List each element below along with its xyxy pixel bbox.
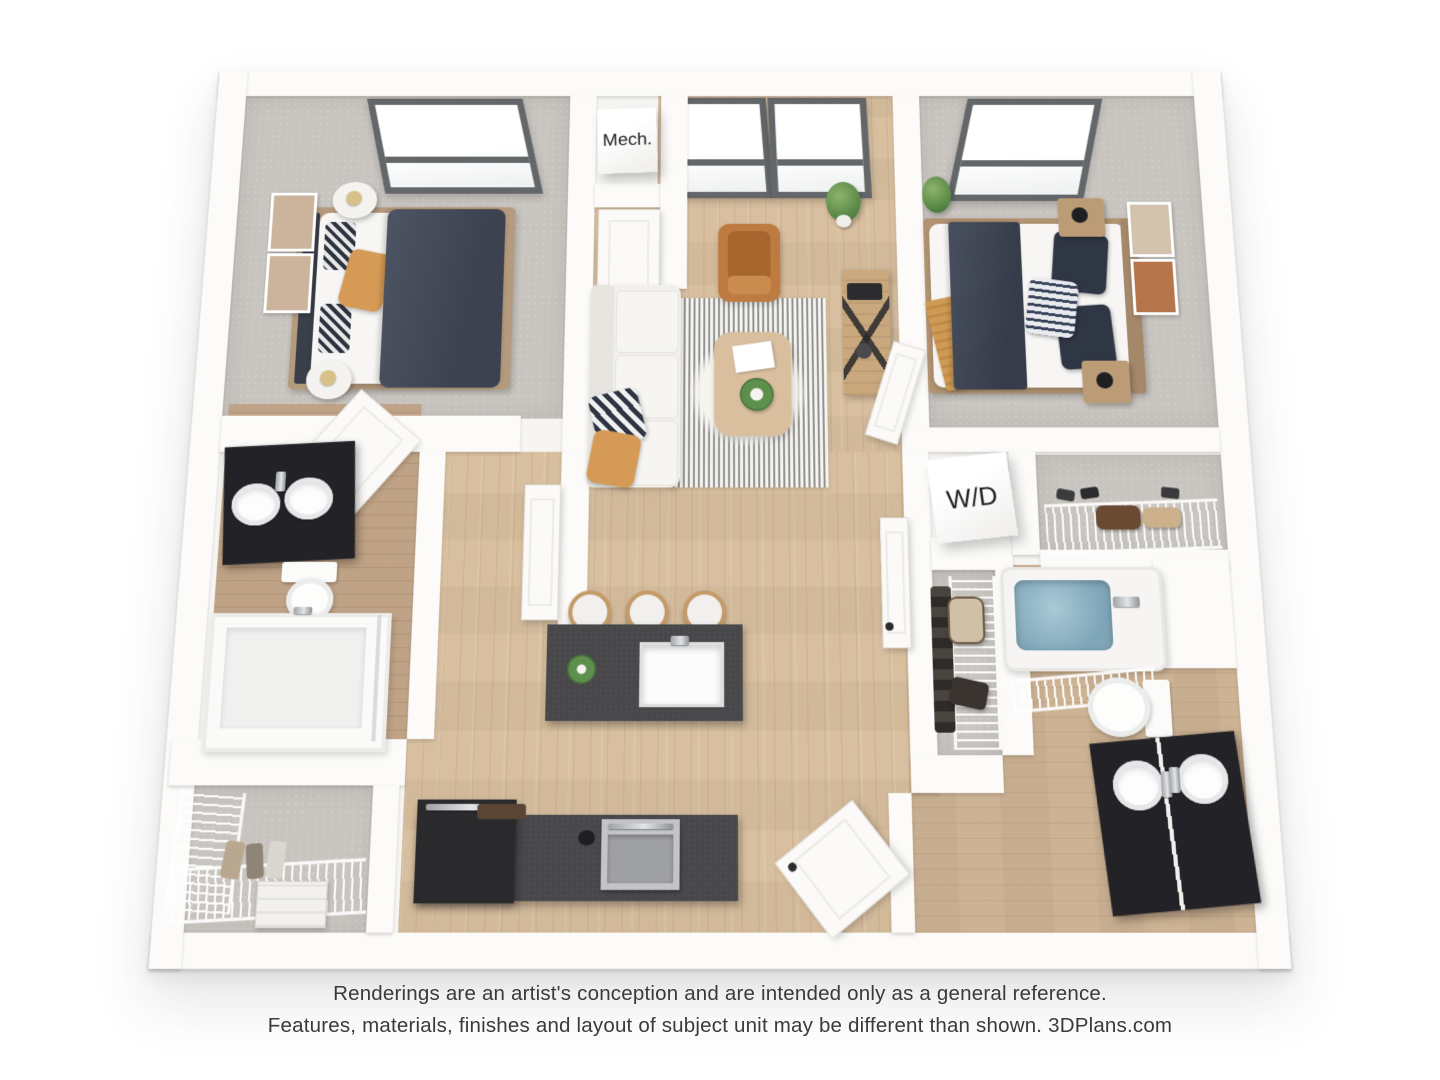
closet-linen-bottom-wall	[910, 755, 1004, 793]
bedroom1-wall-art-bottom	[263, 253, 314, 313]
living-skylight-window-right	[767, 98, 872, 198]
living-armchair-cushion	[728, 276, 771, 295]
hall-bathroom2-door	[880, 517, 912, 648]
outer-wall-bottom	[148, 933, 1291, 969]
kitchen-oven-handle	[608, 824, 674, 829]
door-panel	[885, 531, 906, 634]
outer-wall-top	[218, 70, 1223, 96]
disclaimer-line-2: Features, materials, finishes and layout…	[0, 1010, 1440, 1042]
bathroom2-tub-water	[1014, 580, 1114, 650]
closet-linen-backpack	[947, 597, 986, 645]
floor-plan: Mech.	[148, 70, 1291, 969]
mech-closet-bottom-wall	[595, 184, 661, 208]
door-panel	[528, 499, 554, 606]
bedroom2-blanket-navy	[948, 222, 1027, 390]
bedroom1-duvet-navy	[379, 209, 506, 387]
washer-dryer-label: W/D	[945, 479, 1000, 515]
skylight-crossbar	[960, 160, 1084, 166]
bathroom2-vanity	[1089, 731, 1261, 917]
bedroom2-skylight-window	[946, 99, 1102, 201]
door-handle	[885, 622, 893, 630]
living-armchair-seat	[728, 231, 771, 281]
kitchen-island-sink	[639, 642, 724, 707]
kitchen-oven-door	[607, 835, 673, 884]
closet-tr-bag-tan	[1142, 507, 1182, 527]
bedroom2-bottom-wall	[902, 427, 1221, 452]
entry-hall-floor	[911, 793, 1011, 933]
bedroom2-pillow-striped	[1025, 276, 1079, 339]
bathroom1-shower-head	[293, 607, 312, 614]
bedroom2-lamp-bottom	[1096, 372, 1114, 388]
living-sofa-pillow-orange	[585, 429, 642, 490]
living-plant-pot	[836, 215, 852, 228]
disclaimer-line-1: Renderings are an artist's conception an…	[0, 978, 1440, 1010]
bathroom1-faucet	[275, 472, 286, 492]
bedroom1-pillow-patterned-bottom	[318, 304, 352, 353]
skylight-crossbar	[385, 157, 530, 163]
skylight-crossbar	[777, 159, 864, 165]
bedroom2-wall-art-bottom	[1130, 259, 1179, 315]
bathroom2-faucet-right	[1169, 767, 1181, 793]
floor-plan-rendering: Mech.	[0, 0, 1440, 1080]
bedroom1-door	[521, 484, 561, 620]
living-sofa-cushion-1	[615, 291, 679, 353]
bathroom2-tub-faucet	[1113, 597, 1140, 607]
closet-tr-bag-brown	[1095, 505, 1141, 529]
mech-closet-right-wall	[659, 96, 687, 289]
coffee-table-plant	[740, 378, 774, 411]
bedroom1-wall-art-top	[267, 193, 317, 252]
kitchen-island-faucet	[671, 636, 690, 645]
skylight-crossbar	[678, 159, 765, 165]
bedroom2-lamp-top	[1071, 207, 1088, 223]
mech-closet-cube: Mech.	[597, 108, 658, 174]
bedroom2-plant	[922, 176, 952, 212]
coffee-table-book	[732, 341, 775, 373]
console-speaker	[847, 283, 883, 300]
closet-tr-shoes-3	[1161, 487, 1180, 500]
kitchen-cutting-board	[477, 804, 526, 819]
bathroom1-shower-tray	[220, 628, 367, 729]
closet-bl-dresser	[255, 881, 328, 928]
disclaimer-text: Renderings are an artist's conception an…	[0, 978, 1440, 1042]
washer-dryer-cube: W/D	[926, 452, 1018, 544]
bedroom2-wall-art-top	[1127, 202, 1175, 257]
bedroom1-skylight-window	[367, 99, 543, 194]
console-decor-vase	[856, 343, 872, 358]
closet-bl-clothes-2	[246, 843, 264, 880]
mech-label: Mech.	[603, 130, 653, 151]
